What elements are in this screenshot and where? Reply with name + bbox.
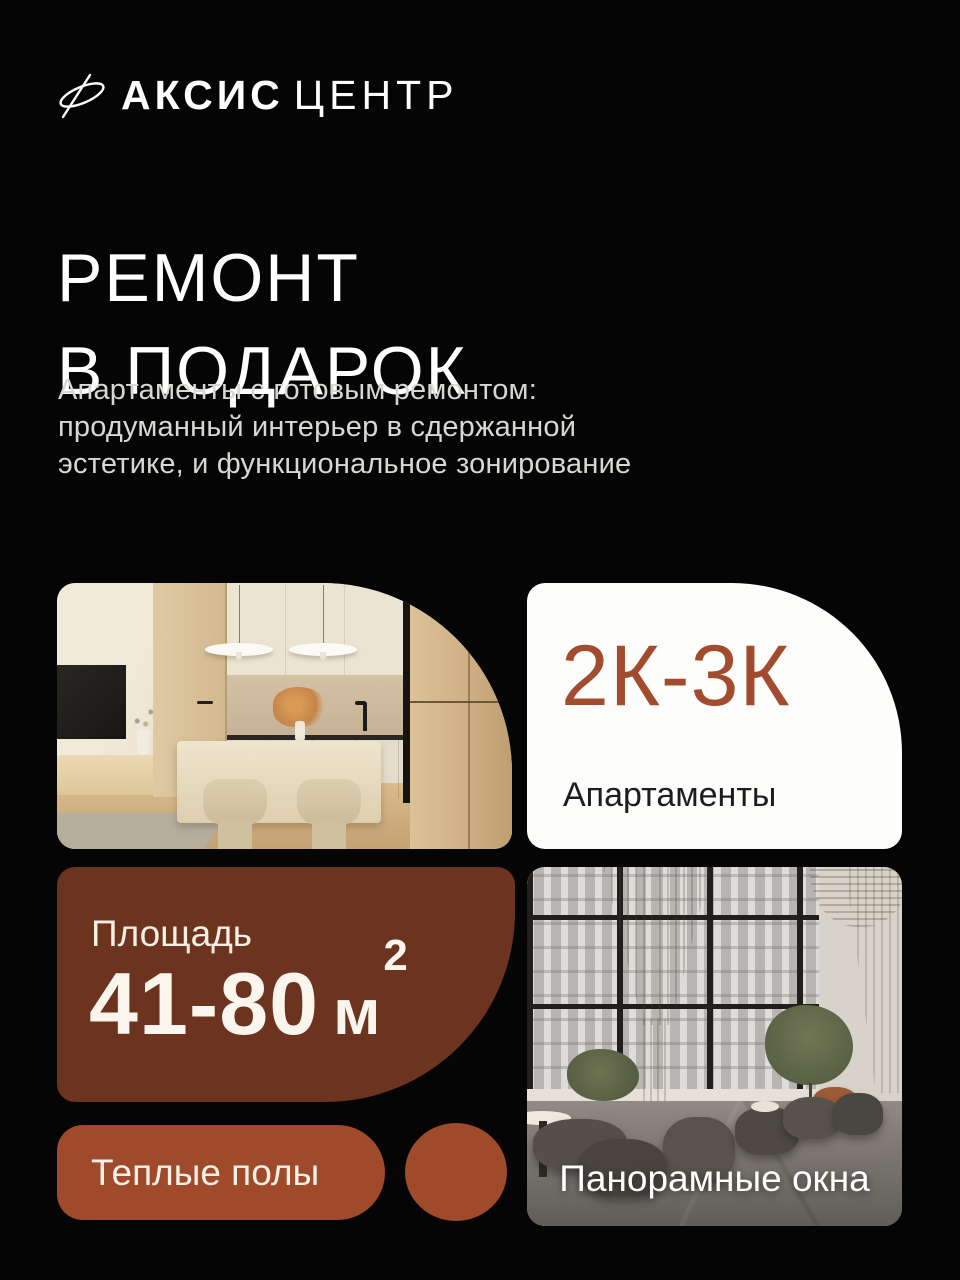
door-handle (197, 701, 213, 704)
flower-vase (295, 721, 305, 741)
subtitle: Апартаменты с готовым ремонтом: продуман… (58, 372, 631, 483)
subtitle-line: Апартаменты с готовым ремонтом: (58, 372, 631, 409)
warm-floors-label: Теплые полы (91, 1152, 319, 1194)
pendant-lamp (289, 643, 357, 656)
subtitle-line: эстетике, и функциональное зонирование (58, 446, 631, 483)
area-unit: м (333, 976, 381, 1048)
window-sill (527, 1089, 819, 1101)
warm-floors-pill: Теплые полы (57, 1125, 385, 1220)
dark-doorway (403, 583, 410, 803)
stool (203, 779, 267, 825)
area-value: 41-80м2 (89, 953, 407, 1055)
upper-cabinets (227, 583, 405, 675)
brand-header: АКСИСЦЕНТР (57, 72, 458, 119)
area-card: Площадь 41-80м2 (57, 867, 515, 1102)
indoor-tree (567, 1049, 639, 1101)
area-range: 41-80 (89, 954, 319, 1053)
wood-cabinet-wall (410, 583, 512, 849)
lounge-chair (833, 1093, 883, 1135)
axis-orbit-logo-icon (57, 73, 107, 119)
rooms-label: Апартаменты (563, 776, 776, 815)
wicker-pendant-lamp (810, 867, 902, 927)
lobby-photo-card: Панорамные окна (527, 867, 902, 1226)
area-label: Площадь (91, 913, 252, 955)
rooms-value: 2К-3К (561, 627, 791, 726)
panorama-label: Панорамные окна (527, 1158, 902, 1200)
headline-line-1: РЕМОНТ (57, 232, 467, 325)
brand-name-primary: АКСИС (121, 72, 284, 118)
fan-column-base (643, 1019, 671, 1107)
indoor-tree (765, 1005, 853, 1085)
tv-screen (57, 665, 126, 739)
cushion (751, 1101, 779, 1112)
faucet (363, 701, 367, 731)
kitchen-photo-card (57, 583, 512, 849)
brand-name: АКСИСЦЕНТР (121, 72, 458, 119)
accent-circle (405, 1123, 507, 1221)
pendant-lamp (205, 643, 273, 656)
brand-name-secondary: ЦЕНТР (294, 72, 459, 118)
vase (137, 729, 149, 755)
subtitle-line: продуманный интерьер в сдержанной (58, 409, 631, 446)
area-unit-superscript: 2 (383, 931, 408, 980)
rooms-card: 2К-3К Апартаменты (527, 583, 902, 849)
stool (297, 779, 361, 825)
